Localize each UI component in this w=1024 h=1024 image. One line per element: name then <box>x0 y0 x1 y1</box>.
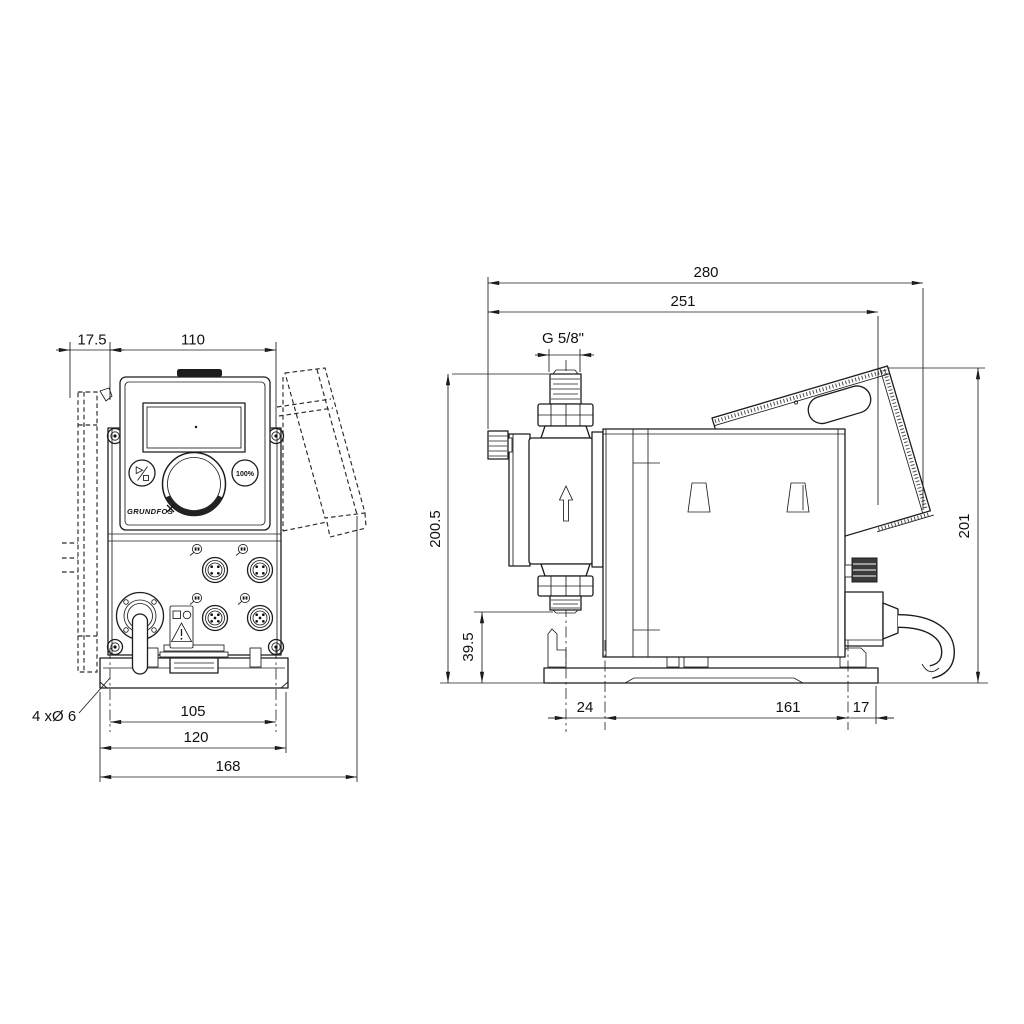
grundfos-logo: GRUNDFOS <box>127 505 174 516</box>
dim-body-depth: 251 <box>670 293 695 310</box>
dim-hole-spacing-front: 105 <box>180 703 205 720</box>
wall-plate-hidden <box>62 392 97 672</box>
dim-head-to-hole: 24 <box>577 699 594 716</box>
side-view: 280 251 G 5/8" 200.5 39.5 201 24 161 17 <box>427 264 988 732</box>
dim-overall-depth: 280 <box>693 264 718 281</box>
pump-body-side <box>603 429 845 657</box>
technical-drawing: 100% GRUNDFOS <box>0 0 1024 1024</box>
bracket-slot <box>787 483 809 512</box>
head-front-plate <box>509 434 530 566</box>
warning-label <box>170 606 193 648</box>
dim-plate-width: 120 <box>183 729 208 746</box>
hundred-percent-label: 100% <box>236 471 255 478</box>
dimensional-drawing-page: 100% GRUNDFOS <box>0 0 1024 1024</box>
dim-height-to-suction: 200.5 <box>427 510 444 548</box>
head-body <box>529 438 593 564</box>
panel-top-tab <box>177 369 222 377</box>
power-cable-side <box>898 621 948 672</box>
discharge-valve-thread <box>550 370 581 404</box>
dim-overall-width: 168 <box>215 758 240 775</box>
dosing-head <box>488 370 603 613</box>
rear-plug-icon <box>852 558 877 582</box>
hundred-percent-button[interactable]: 100% <box>232 460 258 486</box>
power-cable-front <box>133 614 148 674</box>
dim-overall-height: 201 <box>956 513 973 538</box>
dim-wall-offset: 17.5 <box>77 332 106 349</box>
dim-hole-to-rear: 17 <box>853 699 870 716</box>
cable-gland-side <box>845 592 898 646</box>
start-stop-button[interactable] <box>129 460 155 486</box>
bracket-slot <box>688 483 710 512</box>
front-view: 100% GRUNDFOS <box>32 332 366 783</box>
display <box>143 403 245 452</box>
suction-valve-thread <box>550 596 581 613</box>
dim-suction-valve-height: 39.5 <box>460 632 477 661</box>
control-cube-hidden <box>277 368 366 537</box>
dim-panel-width: 110 <box>181 332 205 349</box>
vent-knob[interactable] <box>488 431 512 459</box>
control-panel: 100% GRUNDFOS <box>120 369 270 530</box>
dim-thread-size: G 5/8" <box>542 330 584 347</box>
grundfos-logo-text: GRUNDFOS <box>127 507 173 516</box>
dim-hole-spacing-side: 161 <box>775 699 800 716</box>
mounting-holes-label: 4 xØ 6 <box>32 708 76 725</box>
